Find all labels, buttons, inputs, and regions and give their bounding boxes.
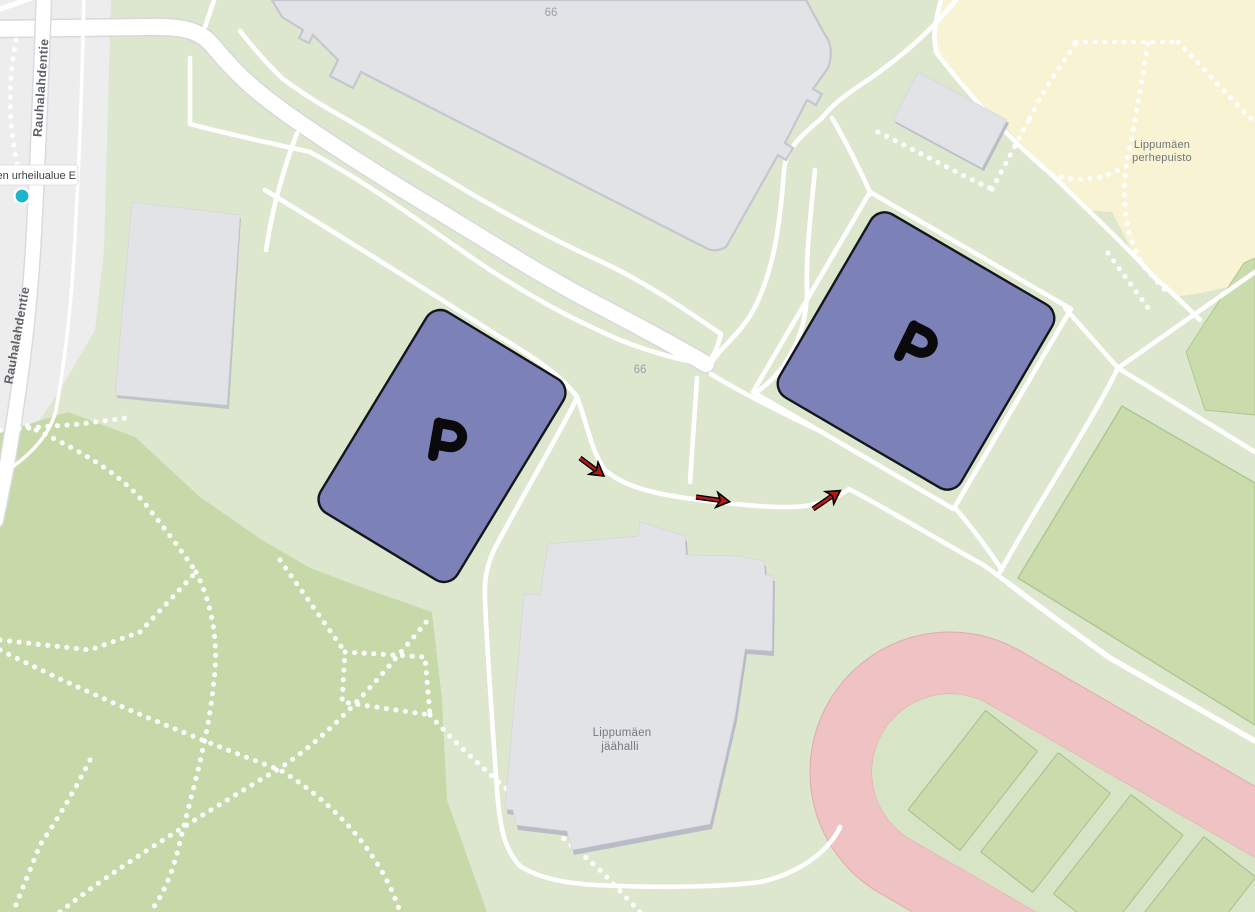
- svg-text:jäähalli: jäähalli: [600, 741, 638, 753]
- svg-text:Lippumäen: Lippumäen: [593, 727, 652, 739]
- svg-text:perhepuisto: perhepuisto: [1132, 152, 1192, 164]
- svg-text:66: 66: [545, 7, 558, 19]
- svg-text:Lippumäen: Lippumäen: [1134, 139, 1190, 151]
- svg-text:66: 66: [634, 364, 647, 376]
- svg-text:Lippumäen urheilualue E: Lippumäen urheilualue E: [0, 170, 76, 182]
